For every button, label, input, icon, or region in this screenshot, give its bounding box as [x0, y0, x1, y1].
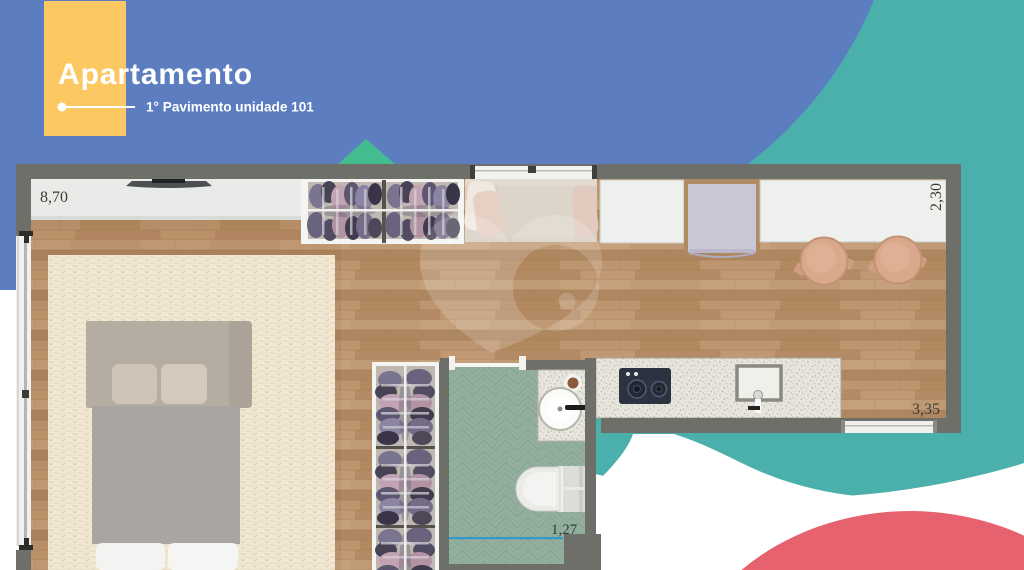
- svg-text:3,35: 3,35: [912, 401, 940, 418]
- svg-text:8,70: 8,70: [40, 189, 68, 206]
- svg-text:2,30: 2,30: [928, 183, 945, 211]
- svg-text:Apartamento: Apartamento: [58, 58, 253, 91]
- svg-text:1° Pavimento unidade 101: 1° Pavimento unidade 101: [146, 100, 314, 115]
